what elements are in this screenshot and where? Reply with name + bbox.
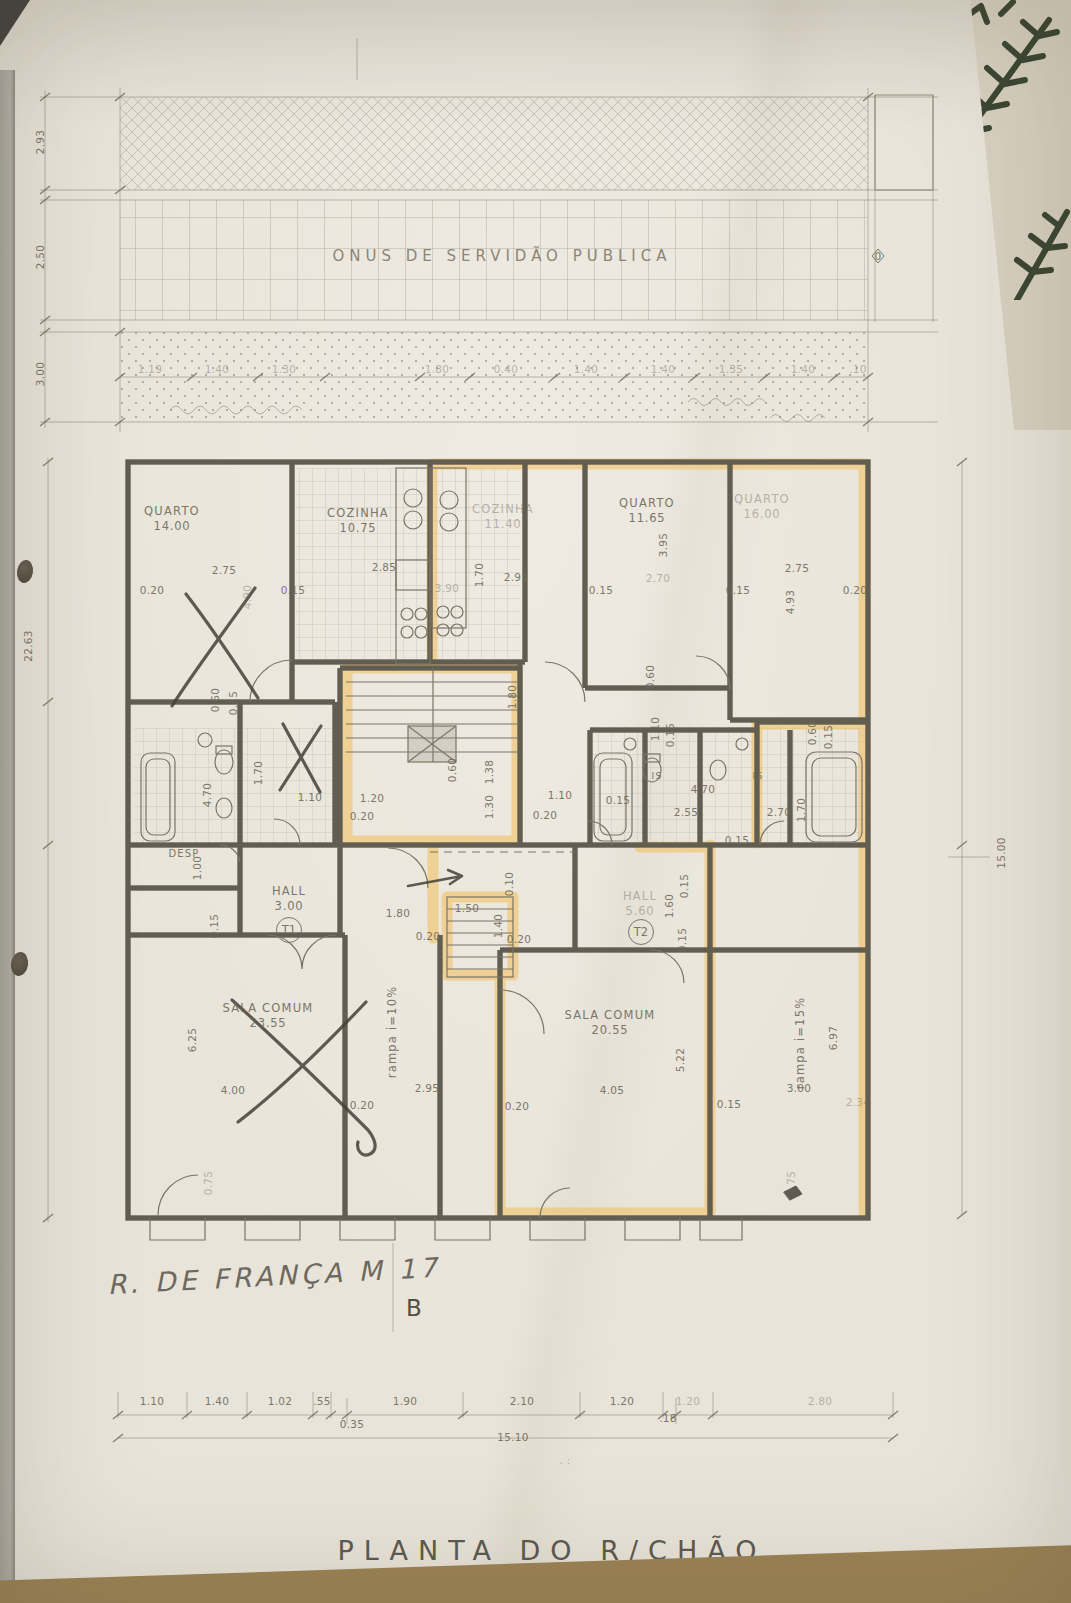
room-sala-2: SALA COMUM20.55: [565, 1008, 656, 1038]
dimension-label: 2.91: [504, 571, 529, 583]
dimension-label: 0.20: [140, 584, 165, 596]
dimension-label: 1.10: [140, 1395, 165, 1407]
dimension-label: 1.38: [483, 760, 495, 785]
room-quarto-2: QUARTO11.65: [619, 496, 675, 526]
dimension-label: 0.15: [725, 834, 750, 846]
dimension-label: 4.93: [784, 590, 796, 615]
dimension-label: 2.75: [212, 564, 237, 576]
dimension-label: 0.15: [589, 584, 614, 596]
dimension-label: 1.20: [610, 1395, 635, 1407]
dimension-label: 1.19: [138, 363, 163, 375]
room-cozinha-2: COZINHA11.40: [472, 502, 534, 532]
unit-t1: T1: [276, 917, 302, 943]
dimension-label: 2.70: [646, 572, 671, 584]
dimension-label: 0.15: [678, 874, 690, 899]
dimension-label: 0.20: [416, 930, 441, 942]
dimension-label: . :: [559, 1454, 570, 1466]
dimension-label: 15.00: [995, 837, 1007, 869]
dimension-label: 1.30: [483, 795, 495, 820]
dimension-label: 3.90: [435, 582, 460, 594]
dimension-label: 0: [875, 250, 882, 262]
dimension-label: 3.95: [657, 533, 669, 558]
room-is-2: IS: [753, 771, 764, 783]
dimension-label: 3.00: [34, 362, 46, 387]
dimension-label: 0.15: [822, 725, 834, 750]
dimension-label: 0.20: [507, 933, 532, 945]
dimension-label: 0.40: [494, 363, 519, 375]
dimension-label: .18: [659, 1412, 677, 1424]
dimension-label: 1.10: [548, 789, 573, 801]
dimension-label: 4.05: [600, 1084, 625, 1096]
ramp-10: rampa i=10%: [385, 986, 400, 1079]
dimension-label: 0.20: [350, 1099, 375, 1111]
dimension-label: 6.97: [827, 1026, 839, 1051]
dimension-label: 4.70: [201, 783, 213, 808]
dimension-label: 1.80: [425, 363, 450, 375]
dimension-label: 0.75: [202, 1171, 214, 1196]
dimension-label: 1.20: [360, 792, 385, 804]
dimension-label: 0.15: [726, 584, 751, 596]
dimension-label: 0.20: [505, 1100, 530, 1112]
dimension-label: 0.15: [227, 691, 239, 716]
dimension-label: 1.50: [455, 902, 480, 914]
dimension-label: 0.20: [843, 584, 868, 596]
dimension-label: 1.35: [719, 363, 744, 375]
dimension-label: 2.93: [34, 130, 46, 155]
dimension-label: 0.20: [350, 810, 375, 822]
dimension-label: 2.10: [510, 1395, 535, 1407]
dimension-label: 1.70: [795, 798, 807, 823]
dimension-label: 1.02: [268, 1395, 293, 1407]
dimension-label: 2.75: [785, 562, 810, 574]
dimension-label: 22.63: [22, 630, 34, 662]
floorplan-drawing: [0, 0, 1071, 1603]
dimension-label: 1.40: [651, 363, 676, 375]
dimension-label: 0.75: [785, 1171, 797, 1196]
dimension-label: 1.40: [574, 363, 599, 375]
room-hall-t2: HALL5.60: [623, 889, 657, 919]
adjacent-paper-edge: [0, 70, 15, 1585]
dimension-label: 1.20: [676, 1395, 701, 1407]
dimension-label: 1.60: [663, 894, 675, 919]
room-is-1: IS: [652, 771, 663, 783]
dimension-label: 1.90: [393, 1395, 418, 1407]
dimension-label: 1.40: [492, 914, 504, 939]
dimension-label: 1.10: [298, 791, 323, 803]
dimension-label: 1.70: [252, 761, 264, 786]
dimension-label: 2.70: [767, 806, 792, 818]
servitude-label: ONUS DE SERVIDÃO PUBLICA: [332, 247, 671, 265]
dimension-label: 1.80: [506, 685, 518, 710]
dimension-label: 0.35: [340, 1418, 365, 1430]
dimension-label: 1.40: [791, 363, 816, 375]
dimension-label: 1.30: [272, 363, 297, 375]
dimension-label: 0.60: [446, 758, 458, 783]
dimension-label: 4.70: [691, 783, 716, 795]
dimension-label: 2.85: [372, 561, 397, 573]
section-letter: B: [406, 1295, 422, 1321]
dimension-label: 0.60: [644, 665, 656, 690]
ramp-15: rampa i=15%: [793, 997, 808, 1090]
room-cozinha-1: COZINHA10.75: [327, 506, 389, 536]
dimension-label: 1.40: [205, 1395, 230, 1407]
dimension-label: 1.80: [386, 907, 411, 919]
dimension-label: 2.95: [415, 1082, 440, 1094]
dimension-label: 5.22: [674, 1048, 686, 1073]
room-sala-1: SALA COMUM23.55: [223, 1001, 314, 1031]
dimension-label: 0.60: [209, 688, 221, 713]
dimension-label: 3.00: [787, 1082, 812, 1094]
dimension-label: 2.80: [808, 1395, 833, 1407]
dimension-label: 2.34: [846, 1096, 871, 1108]
dimension-label: 2.55: [674, 806, 699, 818]
dimension-label: .10: [849, 363, 867, 375]
dimension-label: 0.15: [676, 928, 688, 953]
dimension-label: 4.90: [241, 585, 253, 610]
dimension-label: 0.15: [208, 914, 220, 939]
room-quarto-3: QUARTO16.00: [734, 492, 790, 522]
dimension-label: 1.00: [191, 856, 203, 881]
dimension-label: 0.15: [717, 1098, 742, 1110]
dimension-label: .55: [313, 1395, 331, 1407]
unit-t2: T2: [628, 919, 654, 945]
dimension-label: 0.15: [664, 723, 676, 748]
dimension-label: 0.20: [533, 809, 558, 821]
dimension-label: 0.15: [606, 794, 631, 806]
dimension-label: 1.70: [473, 563, 485, 588]
plan-title: PLANTA DO R/CHÃO: [338, 1535, 767, 1566]
dimension-label: 1.40: [205, 363, 230, 375]
dimension-label: 15.10: [497, 1431, 529, 1443]
dimension-label: 4.00: [221, 1084, 246, 1096]
dimension-label: 0.10: [503, 872, 515, 897]
dimension-label: 0.15: [281, 584, 306, 596]
dimension-label: 2.50: [34, 245, 46, 270]
room-hall-t1: HALL3.00: [272, 884, 306, 914]
floor-plan-photo: ONUS DE SERVIDÃO PUBLICA QUARTO14.00COZI…: [0, 0, 1071, 1603]
room-quarto-1: QUARTO14.00: [144, 504, 200, 534]
dimension-label: 1.10: [649, 717, 661, 742]
dimension-label: 6.25: [186, 1028, 198, 1053]
dimension-label: 0.60: [806, 721, 818, 746]
